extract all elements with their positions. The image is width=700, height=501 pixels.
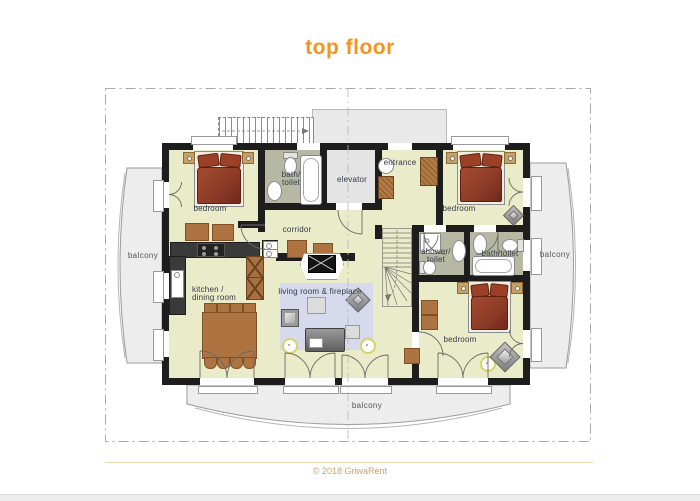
side-table <box>281 309 299 327</box>
wall-bedroom1-bath <box>258 143 265 232</box>
label-shower-toilet: shower/ toilet <box>409 248 463 264</box>
patio-sill-1 <box>198 386 258 394</box>
window-sill-north-1 <box>191 136 237 145</box>
dryer <box>263 249 278 258</box>
pillow <box>197 153 219 168</box>
label-bedroom3: bedroom <box>420 336 500 344</box>
nightstand <box>242 152 254 164</box>
nightstand <box>504 152 516 164</box>
balcony-bottom-rail <box>195 408 502 429</box>
roof-terrace <box>312 109 447 147</box>
bed-bedroom2 <box>457 151 505 205</box>
pillow <box>459 153 481 168</box>
dresser <box>421 300 438 315</box>
wall-bedroom1-door-stub <box>238 221 265 228</box>
patio-door-gap-1 <box>200 378 254 385</box>
dining-chair <box>204 357 217 369</box>
label-corridor: corridor <box>267 226 327 234</box>
nightstand <box>511 282 523 294</box>
patio-sill-2 <box>283 386 339 394</box>
wall-bedroom3-west-a <box>412 282 419 332</box>
window-sill-west-3 <box>153 329 164 361</box>
shower-door-gap <box>424 225 446 232</box>
label-elevator: elevator <box>322 176 382 184</box>
wall-stairs-stub <box>375 225 382 239</box>
balcony-right-rail <box>568 168 576 363</box>
pillow <box>219 153 241 168</box>
bath-door-gap <box>474 225 496 232</box>
fireplace <box>308 255 336 273</box>
window-sill-west-2 <box>153 271 164 303</box>
label-balcony-bottom: balcony <box>337 401 397 410</box>
nightstand <box>446 152 458 164</box>
dresser <box>404 348 420 364</box>
window-sill-north-3 <box>451 136 509 145</box>
dining-table <box>202 312 257 359</box>
window-sill-west-1 <box>153 180 164 212</box>
window-sill-east-1 <box>531 176 542 211</box>
label-bath-toilet-top: bath/ toilet <box>269 171 313 187</box>
label-living-room: living room & fireplace <box>248 288 392 296</box>
dining-chair <box>243 357 256 369</box>
page-title: top floor <box>0 36 700 60</box>
label-balcony-left: balcony <box>113 251 173 260</box>
kitchen-sink <box>171 270 184 298</box>
duvet <box>197 167 241 204</box>
footer-divider <box>105 462 593 463</box>
nightstand <box>183 152 195 164</box>
label-line: toilet <box>409 256 463 264</box>
floor-lamp <box>282 338 298 354</box>
window-east-3 <box>523 330 530 358</box>
label-entrance: entrance <box>372 159 428 167</box>
dining-chair <box>230 357 243 369</box>
label-bedroom2: bedroom <box>419 205 499 213</box>
dresser <box>421 315 438 330</box>
dining-chair <box>217 357 230 369</box>
bed-bedroom3 <box>468 281 511 333</box>
bed-bedroom1 <box>194 151 244 207</box>
patio-door-gap-4 <box>438 378 488 385</box>
bathtub <box>472 256 515 276</box>
label-bath-toilet-right: bath/toilet <box>467 250 533 258</box>
balcony-left-rail <box>118 173 125 358</box>
window-east-1 <box>523 178 530 207</box>
kitchen-cabinet <box>246 256 264 279</box>
window-north-2 <box>297 143 320 150</box>
patio-door-gap-3 <box>342 378 388 385</box>
label-balcony-right: balcony <box>525 250 585 259</box>
dresser <box>185 223 209 241</box>
sofa <box>305 328 345 352</box>
label-line: toilet <box>269 179 313 187</box>
pillow <box>481 153 502 168</box>
window-sill-east-3 <box>531 328 542 362</box>
duvet <box>460 167 502 202</box>
ottoman <box>307 297 326 314</box>
dresser <box>212 224 234 241</box>
patio-sill-3 <box>340 386 392 394</box>
label-bedroom1: bedroom <box>170 205 250 213</box>
entrance-door-gap <box>388 143 412 150</box>
patio-door-gap-2 <box>285 378 335 385</box>
nightstand <box>457 282 469 294</box>
floor-lamp <box>360 338 376 354</box>
elevator-door-gap <box>336 203 362 210</box>
stove <box>197 243 225 257</box>
floor-plan-page: { "title": "top floor", "plan": { "rooms… <box>0 0 700 500</box>
coffee-table <box>345 325 360 339</box>
patio-sill-4 <box>436 386 492 394</box>
duvet <box>471 296 508 330</box>
copyright-text: © 2018 GriwaRent <box>240 466 460 476</box>
